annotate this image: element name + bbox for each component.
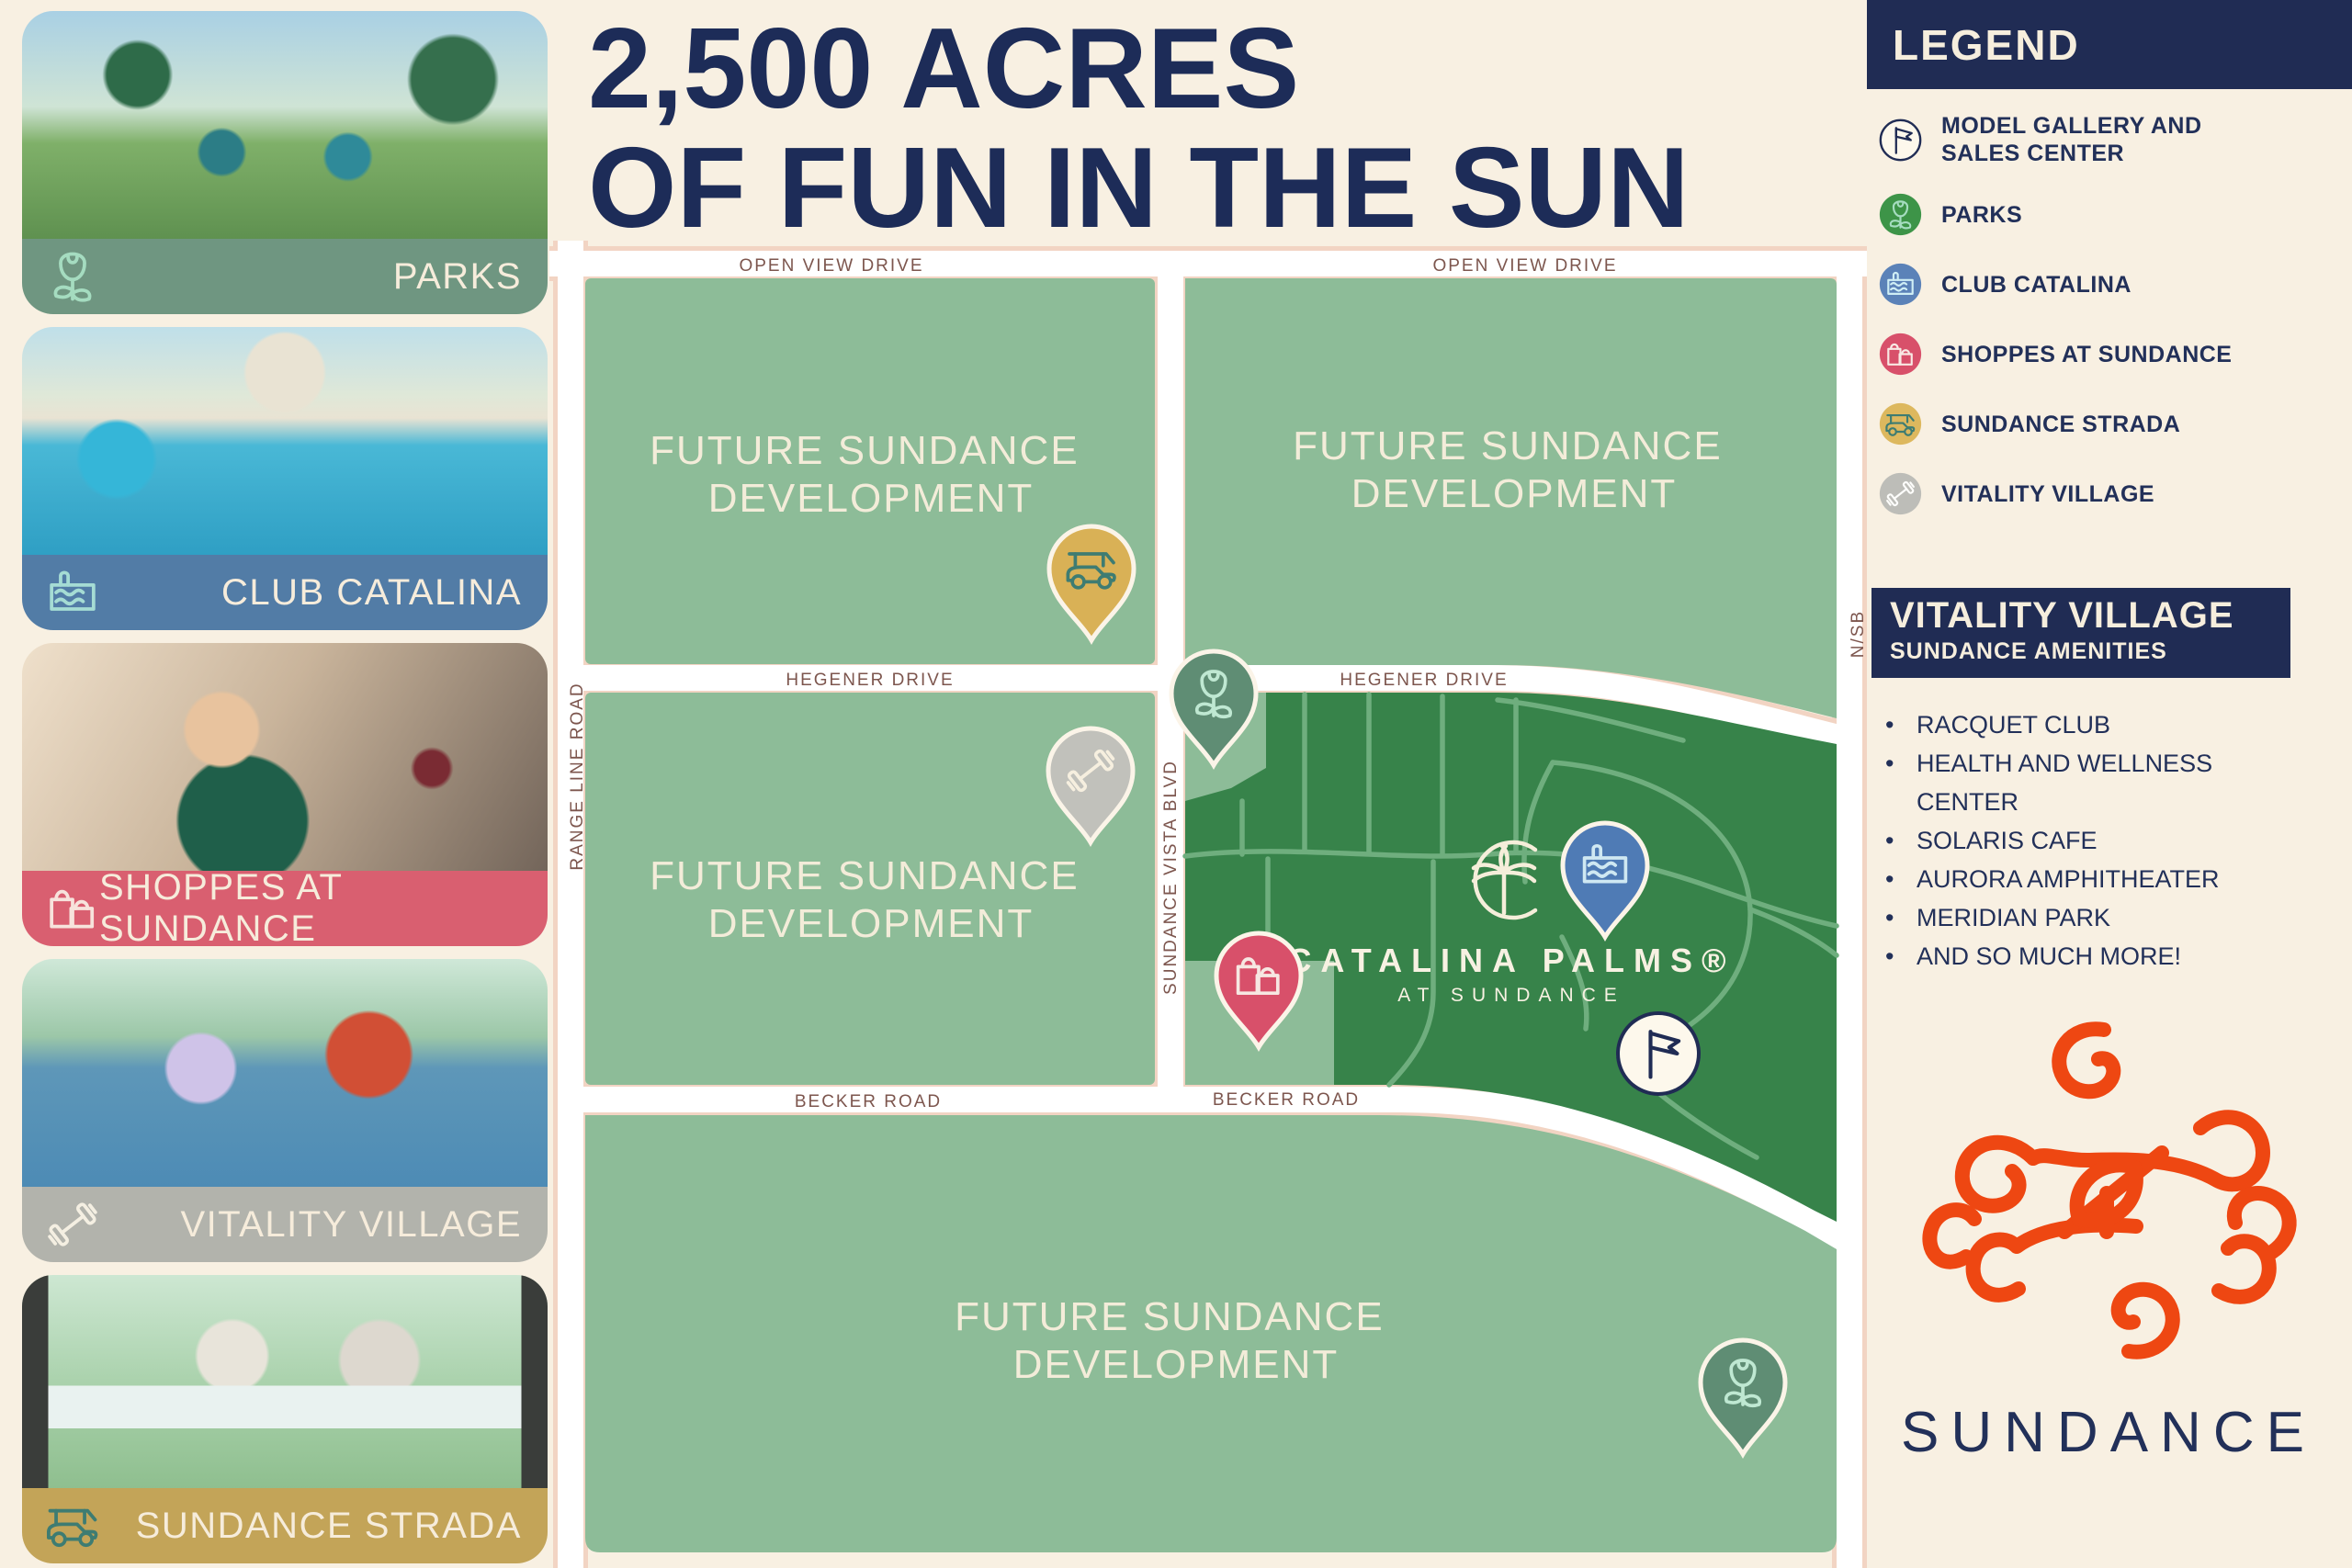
legend-label: VITALITY VILLAGE — [1941, 480, 2154, 508]
golf-cart-icon — [46, 1499, 99, 1552]
road-open-view-east: OPEN VIEW DRIVE — [1432, 256, 1617, 276]
legend-item-vitality: VITALITY VILLAGE — [1878, 471, 2337, 516]
vitality-heading: VITALITY VILLAGE — [1890, 595, 2290, 637]
legend-item-model-gallery: MODEL GALLERY AND SALES CENTER — [1878, 112, 2337, 167]
vitality-subheading: SUNDANCE AMENITIES — [1890, 638, 2290, 665]
legend-label: SUNDANCE STRADA — [1941, 411, 2180, 438]
bullet: • — [1885, 937, 1917, 976]
shopping-bags-icon — [46, 882, 99, 935]
road-hegener-west: HEGENER DRIVE — [786, 671, 954, 690]
photo-parks — [22, 11, 548, 239]
parcel-ne-label-2: DEVELOPMENT — [1351, 471, 1678, 516]
pool-icon — [46, 566, 99, 619]
legend-label: MODEL GALLERY AND SALES CENTER — [1941, 112, 2245, 167]
flower-icon — [46, 250, 99, 303]
card-vitality: VITALITY VILLAGE — [22, 959, 548, 1262]
card-shoppes-label: SHOPPES AT SUNDANCE — [99, 867, 522, 946]
vitality-banner: VITALITY VILLAGE SUNDANCE AMENITIES — [1871, 588, 2290, 678]
dumbbell-icon — [46, 1198, 99, 1251]
card-parks-bar: PARKS — [22, 239, 548, 314]
card-strada-label: SUNDANCE STRADA — [136, 1506, 522, 1547]
road-range-line: RANGE LINE ROAD — [568, 682, 587, 870]
card-vitality-label: VITALITY VILLAGE — [180, 1204, 522, 1246]
amenity-item: •HEALTH AND WELLNESS CENTER — [1885, 744, 2317, 821]
bullet: • — [1885, 705, 1917, 744]
card-club-catalina: CLUB CATALINA — [22, 327, 548, 630]
page-title-line2: OF FUN IN THE SUN — [588, 129, 1690, 248]
card-club-label: CLUB CATALINA — [221, 572, 522, 614]
parcel-ne-label-1: FUTURE SUNDANCE — [1293, 423, 1723, 468]
photo-strada — [22, 1275, 548, 1488]
sundance-logo-mark — [1916, 1013, 2320, 1367]
amenity-item: •SOLARIS CAFE — [1885, 821, 2317, 860]
legend-list: MODEL GALLERY AND SALES CENTER PARKS CLU… — [1878, 112, 2337, 541]
amenity-item: •AND SO MUCH MORE! — [1885, 937, 2317, 976]
bullet: • — [1885, 744, 1917, 821]
legend-label: PARKS — [1941, 201, 2022, 229]
road-becker-east: BECKER ROAD — [1213, 1090, 1360, 1110]
photo-shoppes — [22, 643, 548, 871]
road-open-view-west: OPEN VIEW DRIVE — [739, 256, 923, 276]
parcel-w-label-2: DEVELOPMENT — [708, 901, 1035, 946]
shopping-bags-icon — [1878, 332, 1923, 377]
road-hegener-east: HEGENER DRIVE — [1340, 671, 1508, 690]
community-name: CATALINA PALMS® — [1287, 942, 1735, 979]
parcel-s-label-2: DEVELOPMENT — [1013, 1342, 1340, 1387]
card-shoppes-bar: SHOPPES AT SUNDANCE — [22, 871, 548, 946]
parcel-w-label-1: FUTURE SUNDANCE — [650, 853, 1080, 898]
legend-title: LEGEND — [1893, 20, 2080, 70]
bullet: • — [1885, 860, 1917, 898]
golf-cart-icon — [1878, 401, 1923, 446]
card-club-bar: CLUB CATALINA — [22, 555, 548, 630]
legend-item-shoppes: SHOPPES AT SUNDANCE — [1878, 332, 2337, 377]
road-becker-west: BECKER ROAD — [795, 1092, 942, 1111]
legend-item-club-catalina: CLUB CATALINA — [1878, 262, 2337, 307]
amenity-item: •RACQUET CLUB — [1885, 705, 2317, 744]
community-subname: AT SUNDANCE — [1397, 985, 1625, 1006]
card-parks-label: PARKS — [393, 256, 522, 298]
legend-header: LEGEND — [1867, 0, 2352, 89]
photo-club-catalina — [22, 327, 548, 555]
legend-label: CLUB CATALINA — [1941, 271, 2131, 299]
bullet: • — [1885, 898, 1917, 937]
road-sundance-vista: SUNDANCE VISTA BLVD — [1161, 760, 1181, 995]
pool-icon — [1878, 262, 1923, 307]
brochure-page: PARKS CLUB CATALINA SHOPPES AT SUNDANCE … — [0, 0, 2352, 1568]
card-parks: PARKS — [22, 11, 548, 314]
sundance-wordmark: SUNDANCE — [1865, 1400, 2352, 1465]
road-nsb: N/SB — [1849, 610, 1867, 658]
card-strada: SUNDANCE STRADA — [22, 1275, 548, 1563]
amenities-list: •RACQUET CLUB •HEALTH AND WELLNESS CENTE… — [1885, 705, 2317, 976]
legend-item-parks: PARKS — [1878, 192, 2337, 237]
parcel-nw-label-2: DEVELOPMENT — [708, 476, 1035, 521]
photo-vitality — [22, 959, 548, 1187]
amenity-item: •MERIDIAN PARK — [1885, 898, 2317, 937]
legend-label: SHOPPES AT SUNDANCE — [1941, 341, 2232, 368]
bullet: • — [1885, 821, 1917, 860]
card-shoppes: SHOPPES AT SUNDANCE — [22, 643, 548, 946]
flower-icon — [1878, 192, 1923, 237]
card-vitality-bar: VITALITY VILLAGE — [22, 1187, 548, 1262]
parcel-nw-label-1: FUTURE SUNDANCE — [650, 428, 1080, 473]
amenity-item: •AURORA AMPHITHEATER — [1885, 860, 2317, 898]
model-gallery-marker — [1618, 1013, 1699, 1094]
page-title: 2,500 ACRES OF FUN IN THE SUN — [588, 9, 1690, 248]
legend-item-strada: SUNDANCE STRADA — [1878, 401, 2337, 446]
parcel-s-label-1: FUTURE SUNDANCE — [955, 1294, 1385, 1339]
flag-icon — [1878, 118, 1923, 163]
page-title-line1: 2,500 ACRES — [588, 9, 1690, 129]
site-map: CATALINA PALMS® AT SUNDANCE FUTURE SUNDA… — [549, 241, 1867, 1568]
dumbbell-icon — [1878, 471, 1923, 516]
card-strada-bar: SUNDANCE STRADA — [22, 1488, 548, 1563]
